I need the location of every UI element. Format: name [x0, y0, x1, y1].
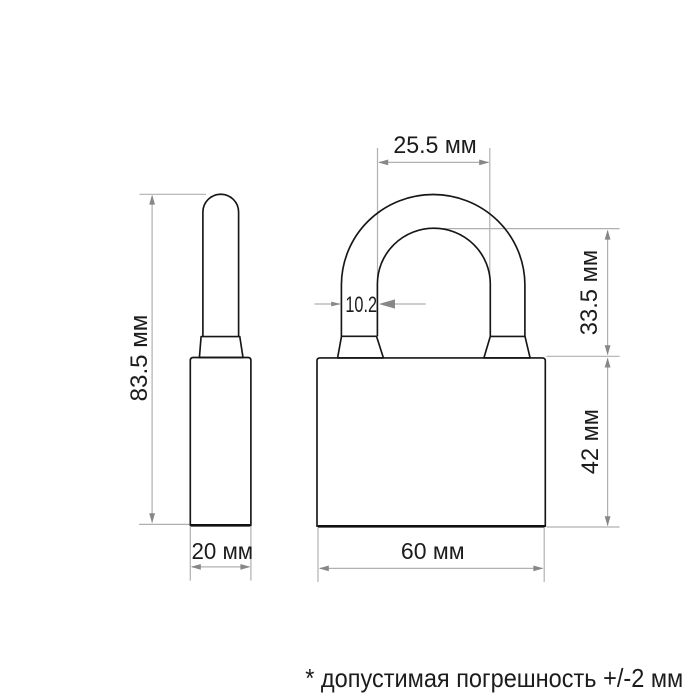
- svg-text:83.5 мм: 83.5 мм: [126, 315, 153, 402]
- svg-text:33.5 мм: 33.5 мм: [576, 250, 603, 335]
- svg-text:20 мм: 20 мм: [191, 538, 253, 564]
- svg-text:25.5 мм: 25.5 мм: [393, 132, 476, 159]
- svg-text:* допустимая погрешность +/-2: * допустимая погрешность +/-2 мм: [305, 663, 683, 693]
- svg-text:42 мм: 42 мм: [577, 409, 604, 474]
- svg-text:10.2: 10.2: [345, 292, 377, 317]
- svg-text:60 мм: 60 мм: [401, 538, 465, 564]
